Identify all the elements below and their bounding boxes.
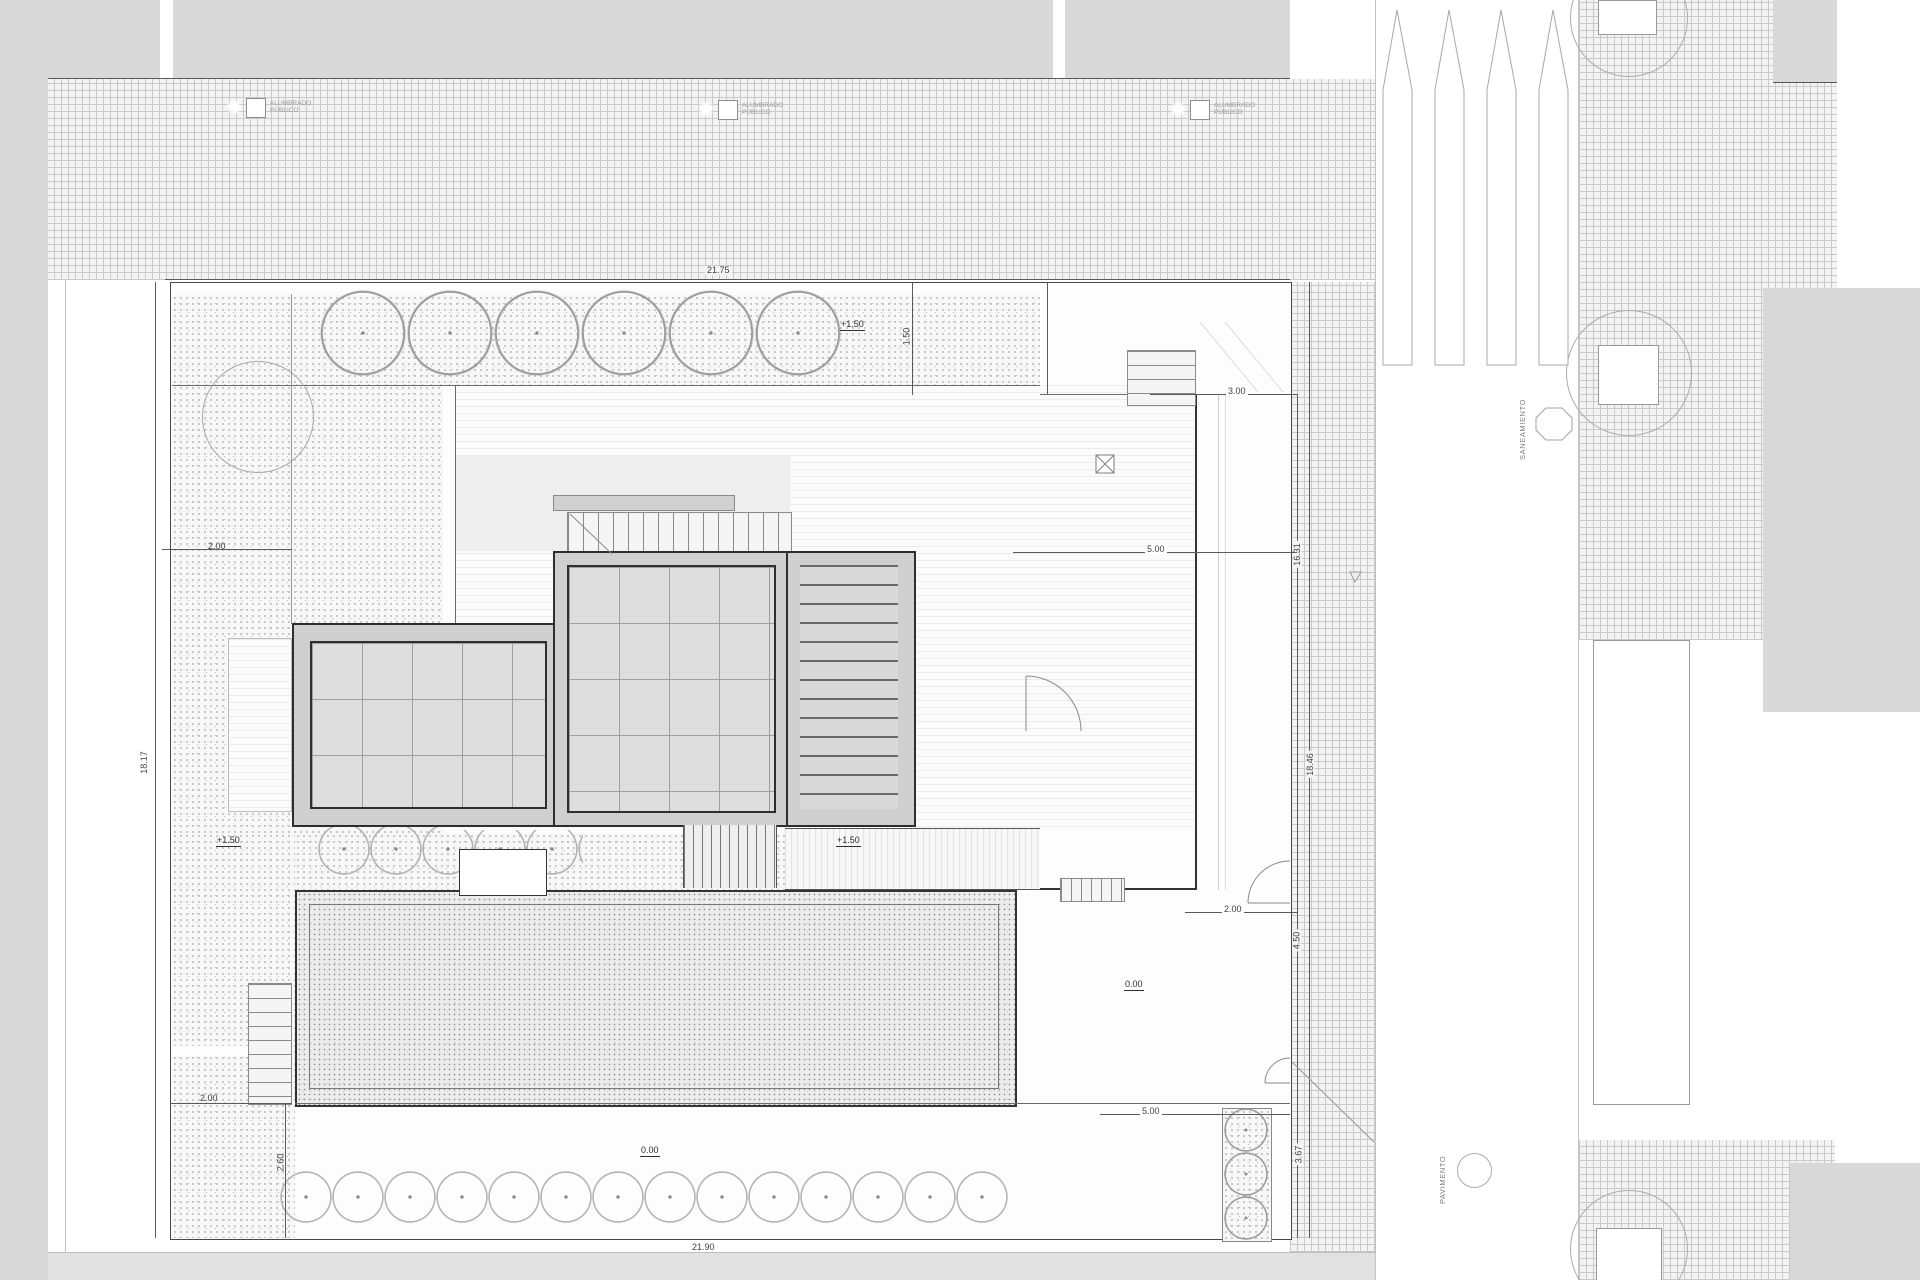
right-road-edge-left: [1375, 0, 1376, 1280]
house-right-wall: [1195, 394, 1197, 890]
stair-under-skylight: [683, 825, 777, 888]
side-yard-line-1: [1218, 394, 1219, 890]
roof-edge-top: [455, 385, 1040, 386]
level-garden-left: +1.50: [216, 836, 241, 847]
dim-line-150-vertical: [912, 282, 913, 395]
deck-stair-right: [1060, 878, 1125, 902]
street-light-label-1: ALUMBRADO PÚBLICO: [270, 100, 311, 115]
stair-top-beam: [553, 495, 735, 511]
saneamiento-label: SANEAMIENTO: [1518, 390, 1527, 460]
dim-mid-500: 5.00: [1145, 545, 1167, 554]
street-light-label-line2: PÚBLICO: [742, 109, 771, 116]
level-courtyard: 0.00: [1124, 980, 1144, 991]
dim-left-200-top: 2.00: [208, 542, 226, 551]
building-corner-line-left: [291, 294, 292, 624]
dim-right-450: 4.50: [1292, 930, 1301, 952]
manhole-octagon-icon: [1536, 408, 1572, 440]
dim-left-260: 2.60: [276, 1154, 285, 1172]
dim-line-300: [1150, 394, 1297, 395]
street-light-icon: [718, 100, 738, 120]
bottom-curb-band: [48, 1252, 1375, 1280]
lane-arrow-icon: [1435, 10, 1464, 365]
terrace-inner-border: [309, 904, 999, 1089]
top-buildings-gap-1: [160, 0, 173, 78]
lane-arrow-icon: [1539, 10, 1568, 365]
top-buildings-gap-2: [1053, 0, 1065, 78]
dim-left: 18.17: [140, 751, 149, 774]
left-curb-line: [65, 280, 66, 1280]
deck-strip: [785, 828, 1040, 890]
street-light-glow-1: [226, 99, 242, 115]
dim-right-367: 3.67: [1294, 1144, 1303, 1166]
street-light-label-2: ALUMBRADO PÚBLICO: [742, 102, 783, 117]
side-stair-upper-right: [1127, 350, 1196, 406]
lane-arrow-icon: [1487, 10, 1516, 365]
street-light-label-line1: ALUMBRADO: [1214, 102, 1255, 109]
street-light-icon: [1190, 100, 1210, 120]
courtyard-planter-bushes: [1222, 1108, 1270, 1240]
lane-arrows: [1383, 10, 1568, 365]
street-light-glow-3: [1170, 101, 1186, 117]
tree-canopy-mid: [1566, 310, 1692, 436]
level-garden-top: +1.50: [840, 320, 865, 331]
street-light-glow-2: [698, 101, 714, 117]
hedge-row-bottom: [280, 1168, 1008, 1226]
street-light-label-line1: ALUMBRADO: [742, 102, 783, 109]
dim-line-right-inner: [1297, 394, 1298, 1238]
dim-right-full: 18.46: [1306, 751, 1315, 778]
garden-path-gap: [172, 1046, 248, 1056]
right-building-mid: [1763, 288, 1920, 712]
street-light-label-line2: PÚBLICO: [270, 107, 299, 114]
street-light-icon: [246, 98, 266, 118]
street-light-label-3: ALUMBRADO PÚBLICO: [1214, 102, 1255, 117]
dim-bottom: 21.90: [690, 1243, 717, 1252]
dim-line-200-top-left: [162, 549, 292, 550]
street-light-label-line1: ALUMBRADO: [270, 100, 311, 107]
dim-line-top: [165, 279, 1290, 280]
top-buildings-block: [12, 0, 1290, 78]
lower-strip-wall-line: [295, 1103, 1290, 1104]
street-light-label-line2: PÚBLICO: [1214, 109, 1243, 116]
left-buildings-strip: [0, 0, 48, 1280]
lower-roof-panel-left: [228, 638, 292, 812]
level-entry: 0.00: [640, 1146, 660, 1157]
garden-top-tree-row: [320, 290, 842, 376]
lane-arrow-icon: [1383, 10, 1412, 365]
dim-top-right-300: 3.00: [1226, 387, 1248, 396]
louver-block-slats: [800, 565, 898, 809]
garden-left-tree: [202, 361, 314, 473]
site-right-sidewalk-strip: [1290, 282, 1375, 1280]
right-building-bottom: [1790, 1163, 1920, 1280]
site-plan-canvas: ALUMBRADO PÚBLICO ALUMBRADO PÚBLICO ALUM…: [0, 0, 1920, 1280]
right-building-top: [1773, 0, 1837, 83]
median-strip: [1593, 640, 1690, 1105]
terrace-opening: [459, 849, 547, 896]
pavimento-manhole-icon: [1457, 1153, 1492, 1188]
dim-line-vertical-2: [1047, 282, 1048, 394]
level-deck: +1.50: [836, 836, 861, 847]
skylight-left-grid: [310, 641, 547, 809]
dim-low-500: 5.00: [1140, 1107, 1162, 1116]
dim-top: 21.75: [705, 266, 732, 275]
dim-left-200-bottom: 2.00: [200, 1094, 218, 1103]
dim-right-lower: 16.31: [1293, 541, 1302, 568]
skylight-right-grid: [567, 565, 776, 813]
dim-line-200-bottom-left: [170, 1103, 292, 1104]
dim-top-150: 1.50: [902, 328, 911, 346]
side-yard-line-2: [1225, 394, 1226, 890]
pavimento-label: PAVIMENTO: [1438, 1138, 1447, 1204]
dim-gate-200: 2.00: [1222, 905, 1244, 914]
garden-stair-left: [248, 983, 292, 1105]
dim-line-500-low: [1100, 1114, 1290, 1115]
roof-edge-left: [455, 385, 456, 623]
dim-line-left: [155, 282, 156, 1238]
